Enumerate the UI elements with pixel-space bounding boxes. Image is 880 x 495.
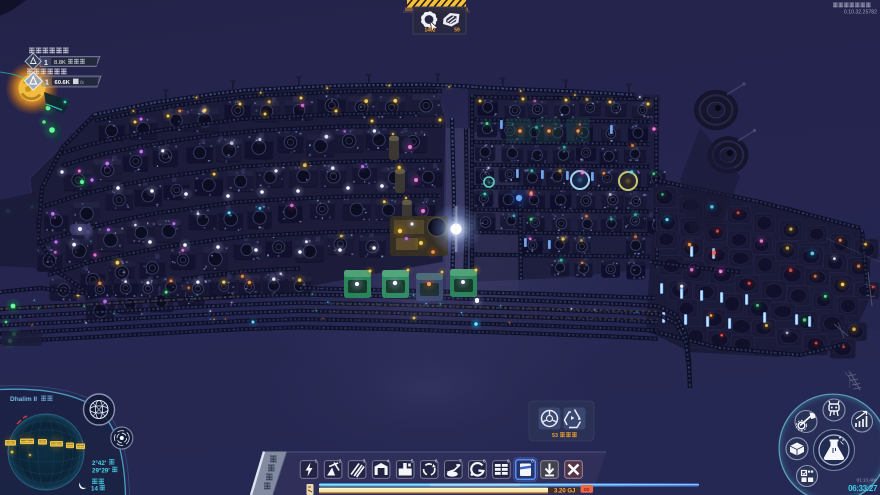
svg-text:∞: ∞ bbox=[584, 484, 590, 494]
svg-text:3.20 GJ: 3.20 GJ bbox=[554, 489, 575, 495]
svg-text:8: 8 bbox=[483, 458, 486, 463]
svg-text:3: 3 bbox=[363, 458, 366, 463]
svg-text:60.6K: 60.6K bbox=[55, 80, 71, 86]
svg-text:0.10.32.25782: 0.10.32.25782 bbox=[844, 10, 877, 16]
svg-text:5: 5 bbox=[411, 458, 414, 463]
svg-text:2: 2 bbox=[339, 458, 342, 463]
svg-text:29°29′: 29°29′ bbox=[92, 468, 110, 475]
svg-text:8.8K: 8.8K bbox=[54, 60, 66, 66]
svg-text:01:13 AM: 01:13 AM bbox=[857, 478, 877, 483]
svg-text:9: 9 bbox=[507, 458, 510, 463]
svg-text:1: 1 bbox=[44, 60, 48, 67]
svg-text:59: 59 bbox=[454, 28, 460, 34]
svg-text:4: 4 bbox=[387, 458, 390, 463]
svg-text:0: 0 bbox=[531, 458, 534, 463]
svg-text:06:33:27: 06:33:27 bbox=[848, 484, 878, 493]
svg-text:14: 14 bbox=[91, 486, 98, 493]
svg-text:/s: /s bbox=[80, 80, 84, 86]
svg-text:2°42′: 2°42′ bbox=[92, 460, 107, 467]
svg-text:1: 1 bbox=[45, 80, 49, 87]
svg-text:Dhalim II: Dhalim II bbox=[10, 396, 37, 403]
svg-text:1462: 1462 bbox=[424, 28, 435, 34]
svg-text:53: 53 bbox=[552, 433, 558, 439]
svg-text:7: 7 bbox=[459, 458, 462, 463]
svg-text:1: 1 bbox=[315, 458, 318, 463]
svg-text:6: 6 bbox=[435, 458, 438, 463]
